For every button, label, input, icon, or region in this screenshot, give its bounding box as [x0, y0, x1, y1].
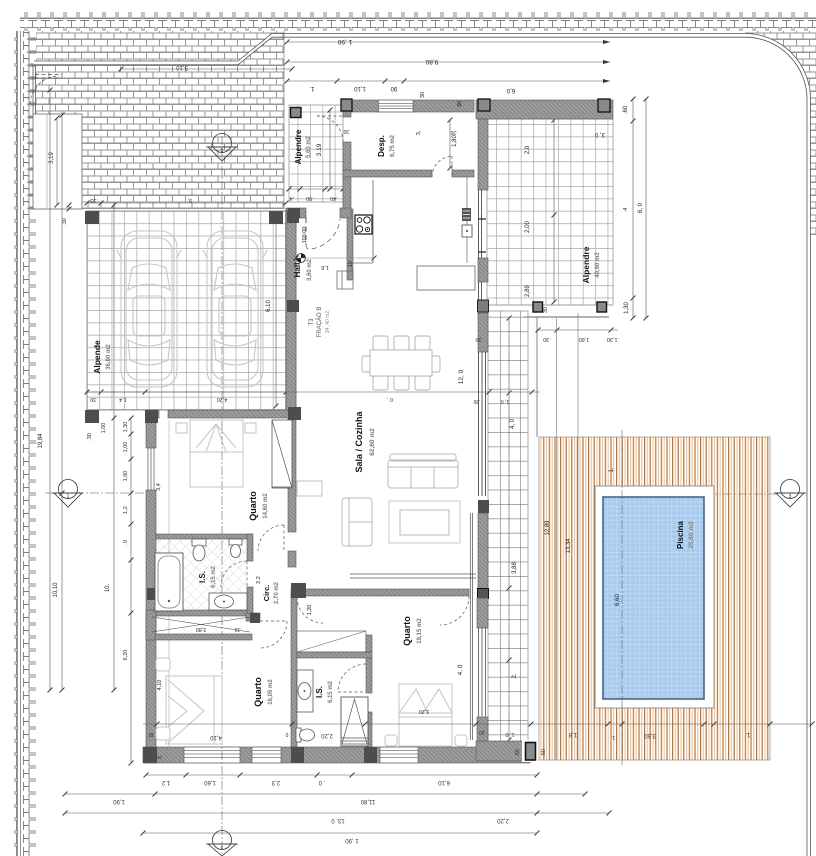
- svg-text:6, 0: 6, 0: [638, 202, 644, 213]
- svg-text:2,20: 2,20: [497, 817, 509, 823]
- svg-text:3.19: 3.19: [316, 143, 323, 156]
- svg-text:13, 0: 13, 0: [331, 817, 345, 823]
- svg-text:1.2: 1.2: [161, 779, 170, 785]
- svg-text:1,60: 1,60: [123, 471, 129, 482]
- svg-text:.30: .30: [475, 336, 482, 342]
- svg-text:1,2: 1,2: [123, 506, 129, 514]
- svg-text:30: 30: [543, 307, 549, 313]
- svg-text:.30: .30: [543, 336, 551, 342]
- svg-text:Piscina: Piscina: [676, 520, 685, 549]
- svg-text:0: 0: [285, 731, 288, 737]
- svg-text:.60: .60: [541, 749, 547, 757]
- svg-text:13,34: 13,34: [566, 538, 572, 554]
- svg-text:1, 0: 1, 0: [501, 398, 510, 404]
- svg-text:.30: .30: [343, 128, 350, 134]
- svg-text:19,84: 19,84: [38, 433, 44, 449]
- svg-text:1,20: 1,20: [307, 605, 313, 616]
- svg-text:.4: .4: [623, 208, 629, 213]
- svg-text:.30: .30: [156, 755, 163, 760]
- svg-text:1,4: 1,4: [119, 396, 127, 402]
- svg-text:Quarto: Quarto: [402, 616, 412, 646]
- svg-text:FRAÇÃO B: FRAÇÃO B: [316, 307, 323, 338]
- svg-text:9,: 9,: [187, 197, 192, 203]
- svg-text:.30: .30: [62, 218, 68, 226]
- svg-text:36,00 m2: 36,00 m2: [106, 344, 112, 370]
- svg-text:1 ,90: 1 ,90: [345, 837, 359, 843]
- svg-text:25,60 m2: 25,60 m2: [688, 521, 695, 549]
- svg-text:1,60: 1,60: [204, 779, 216, 785]
- svg-text:6,15 m2: 6,15 m2: [328, 680, 334, 703]
- svg-text:24 ,40 m2: 24 ,40 m2: [325, 311, 331, 333]
- svg-text:Alpendre: Alpendre: [581, 246, 591, 283]
- svg-text:.33: .33: [90, 197, 98, 203]
- svg-text:.60: .60: [623, 105, 629, 114]
- svg-text:Hall: Hall: [293, 263, 302, 278]
- svg-text:T3: T3: [309, 318, 315, 326]
- svg-text:1.: 1.: [610, 734, 615, 740]
- svg-text:.30: .30: [450, 129, 457, 135]
- svg-text:.60: .60: [515, 749, 521, 757]
- svg-text:.90: .90: [306, 195, 314, 201]
- svg-text:30: 30: [479, 729, 485, 735]
- svg-text:Quarto: Quarto: [248, 491, 258, 521]
- svg-text:30: 30: [457, 101, 463, 107]
- svg-text:12,89: 12,89: [545, 520, 551, 536]
- svg-text:Sala / Cozinha: Sala / Cozinha: [354, 410, 364, 472]
- svg-text:3,: 3,: [416, 130, 422, 135]
- svg-text:3,60 m2: 3,60 m2: [307, 258, 313, 281]
- svg-text:3,80: 3,80: [196, 626, 207, 632]
- svg-text:1,30: 1,30: [624, 302, 630, 314]
- svg-text:40,90 m2: 40,90 m2: [595, 252, 601, 278]
- svg-text:2,70 m2: 2,70 m2: [274, 581, 280, 604]
- svg-text:19,15 m2: 19,15 m2: [417, 618, 423, 644]
- svg-text:1,30: 1,30: [123, 422, 129, 433]
- svg-text:1.: 1.: [745, 731, 750, 737]
- svg-text:3: 3: [789, 494, 792, 500]
- svg-text:.1,30: .1,30: [607, 336, 619, 342]
- svg-text:. 0: . 0: [318, 779, 325, 785]
- svg-text:1,80: 1,80: [452, 135, 458, 147]
- svg-text:100.00: 100.00: [302, 227, 308, 244]
- svg-text:14,60 m2: 14,60 m2: [263, 493, 269, 519]
- svg-text:2,3: 2,3: [271, 779, 280, 785]
- svg-text:6,20: 6,20: [123, 650, 129, 661]
- svg-text:11,80: 11,80: [360, 798, 375, 804]
- svg-text:0 .: 0 .: [386, 396, 393, 402]
- svg-text:Circ.: Circ.: [262, 585, 271, 602]
- svg-text:1 ,90: 1 ,90: [337, 38, 352, 45]
- svg-text:3,60: 3,60: [644, 732, 656, 738]
- svg-text:2.: 2.: [512, 673, 518, 678]
- svg-text:6,10: 6,10: [438, 779, 450, 785]
- svg-text:1,00: 1,00: [123, 442, 129, 453]
- svg-text:Alpendre: Alpendre: [294, 129, 303, 164]
- svg-text:3,4: 3,4: [156, 483, 162, 491]
- svg-text:6,0: 6,0: [506, 87, 515, 93]
- svg-text:Desp.: Desp.: [377, 135, 386, 157]
- svg-text:6,10: 6,10: [266, 300, 272, 312]
- svg-text:1,90: 1,90: [113, 798, 125, 804]
- svg-text:1,00: 1,00: [101, 423, 107, 434]
- svg-text:4,10: 4,10: [157, 680, 163, 691]
- svg-text:1: 1: [67, 494, 70, 500]
- svg-text:90: 90: [390, 85, 397, 91]
- svg-text:3,20: 3,20: [419, 708, 430, 714]
- svg-text:5,60 m2: 5,60 m2: [306, 135, 312, 158]
- svg-text:1,8: 1,8: [568, 731, 577, 737]
- svg-text:1, 0: 1, 0: [505, 731, 514, 737]
- svg-text:,40: ,40: [330, 195, 338, 201]
- svg-text:. 0: . 0: [123, 540, 129, 546]
- svg-text:4, 0: 4, 0: [510, 418, 516, 429]
- svg-text:6,75 m2: 6,75 m2: [390, 134, 396, 157]
- svg-text:.10: .10: [348, 261, 354, 269]
- svg-text:.30: .30: [148, 731, 155, 737]
- svg-text:.30: .30: [90, 396, 98, 402]
- svg-text:,4: ,4: [290, 195, 295, 201]
- svg-text:.30: .30: [87, 433, 93, 441]
- svg-text:2,0: 2,0: [525, 145, 531, 154]
- svg-text:1.: 1.: [309, 85, 314, 91]
- svg-text:1,10: 1,10: [354, 85, 366, 91]
- svg-text:10.: 10.: [105, 583, 111, 592]
- svg-text:30: 30: [420, 92, 426, 98]
- svg-text:.30: .30: [473, 398, 480, 404]
- svg-text:6,60: 6,60: [615, 594, 621, 606]
- svg-text:1,60: 1,60: [579, 336, 590, 342]
- svg-text:62,60 m2: 62,60 m2: [369, 428, 376, 456]
- svg-text:Alpende: Alpende: [92, 340, 102, 374]
- svg-text:10,10: 10,10: [53, 582, 59, 598]
- svg-text:4,20: 4,20: [217, 396, 228, 402]
- svg-text:3, 0: 3, 0: [594, 131, 605, 137]
- svg-text:4, 0: 4, 0: [457, 664, 464, 675]
- svg-text:2,89: 2,89: [525, 285, 531, 297]
- svg-text:Quarto: Quarto: [253, 677, 263, 707]
- svg-text:2.2: 2.2: [256, 576, 262, 584]
- svg-text:5,10: 5,10: [176, 64, 188, 70]
- svg-text:1.: 1.: [609, 467, 615, 472]
- svg-text:1,6: 1,6: [321, 264, 329, 270]
- svg-text:b: b: [221, 148, 224, 154]
- svg-text:9,80: 9,80: [425, 58, 438, 65]
- svg-text:4,10: 4,10: [210, 734, 222, 740]
- svg-text:12, 0: 12, 0: [458, 369, 465, 384]
- svg-text:2,00: 2,00: [525, 221, 531, 233]
- svg-text:2,20: 2,20: [321, 732, 333, 738]
- svg-text:I.S.: I.S.: [315, 686, 324, 698]
- svg-text:.10: .10: [234, 626, 241, 632]
- svg-text:16,05 m2: 16,05 m2: [268, 679, 274, 705]
- svg-text:3,88: 3,88: [512, 562, 518, 574]
